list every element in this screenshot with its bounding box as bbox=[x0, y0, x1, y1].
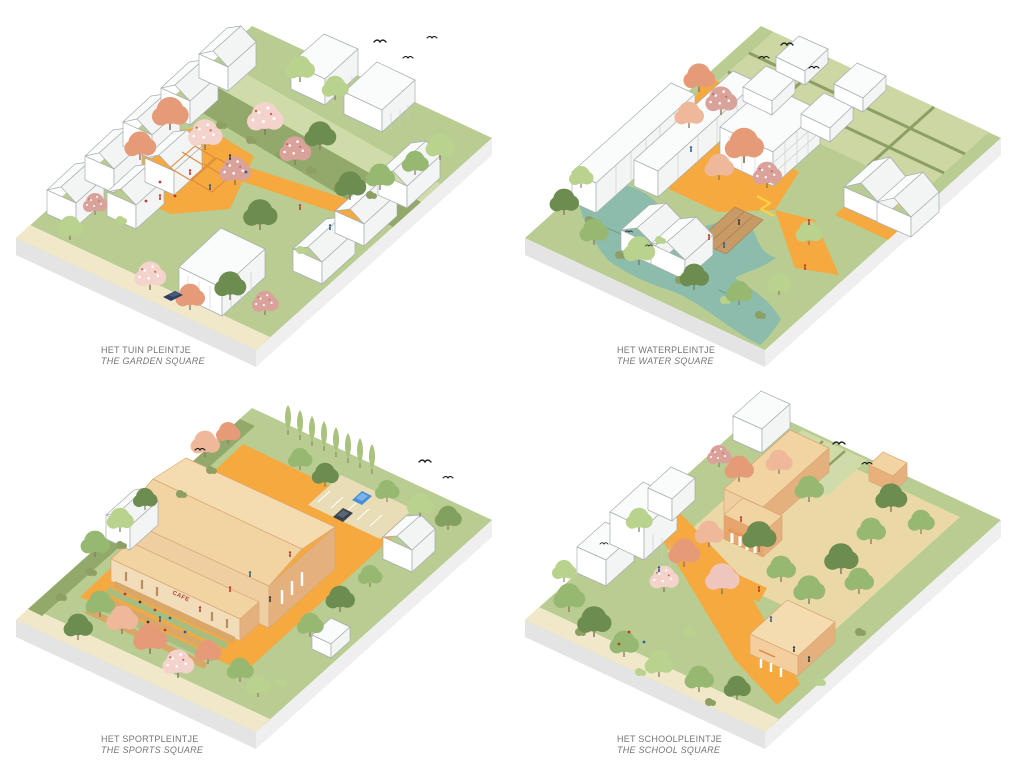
caption-garden-en: THE GARDEN SQUARE bbox=[101, 356, 205, 367]
caption-school-en: THE SCHOOL SQUARE bbox=[617, 745, 722, 756]
panel-school-square: SCHOOL bbox=[509, 382, 1018, 764]
caption-garden-nl: HET TUIN PLEINTJE bbox=[101, 345, 205, 356]
caption-water-en: THE WATER SQUARE bbox=[617, 356, 715, 367]
caption-sports-en: THE SPORTS SQUARE bbox=[101, 745, 203, 756]
sports-square-illustration: CAFE bbox=[0, 382, 509, 764]
caption-water-square: HET WATERPLEINTJE THE WATER SQUARE bbox=[617, 345, 715, 367]
caption-sports-nl: HET SPORTPLEINTJE bbox=[101, 734, 203, 745]
panel-water-square: HET WATERPLEINTJE THE WATER SQUARE bbox=[509, 0, 1018, 382]
garden-square-illustration bbox=[0, 0, 509, 382]
caption-garden-square: HET TUIN PLEINTJE THE GARDEN SQUARE bbox=[101, 345, 205, 367]
panel-garden-square: HET TUIN PLEINTJE THE GARDEN SQUARE bbox=[0, 0, 509, 382]
caption-school-nl: HET SCHOOLPLEINTJE bbox=[617, 734, 722, 745]
birds bbox=[374, 36, 437, 58]
caption-school-square: HET SCHOOLPLEINTJE THE SCHOOL SQUARE bbox=[617, 734, 722, 756]
school-square-illustration: SCHOOL bbox=[509, 382, 1018, 764]
illustration-sheet: HET TUIN PLEINTJE THE GARDEN SQUARE bbox=[0, 0, 1018, 764]
caption-sports-square: HET SPORTPLEINTJE THE SPORTS SQUARE bbox=[101, 734, 203, 756]
panel-sports-square: CAFE bbox=[0, 382, 509, 764]
caption-water-nl: HET WATERPLEINTJE bbox=[617, 345, 715, 356]
panel-grid: HET TUIN PLEINTJE THE GARDEN SQUARE bbox=[0, 0, 1018, 764]
water-square-illustration bbox=[509, 0, 1018, 382]
